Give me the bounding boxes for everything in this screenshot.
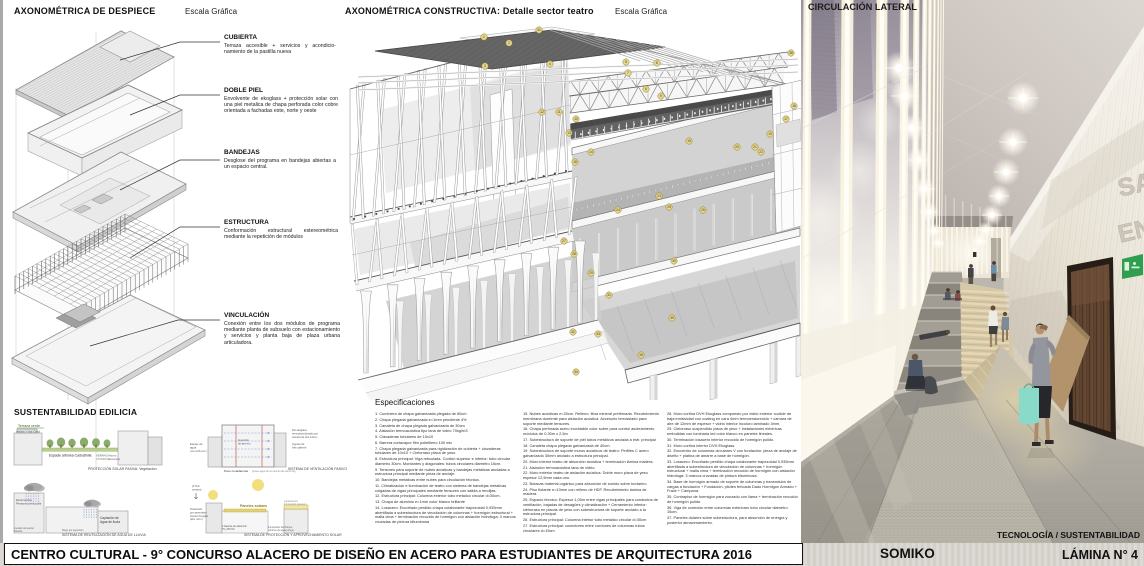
svg-text:por amendamt: por amendamt [190,510,207,514]
svg-text:35: 35 [670,316,674,320]
svg-text:21: 21 [753,145,757,149]
svg-text:15: 15 [687,139,691,143]
svg-text:8: 8 [656,61,658,65]
svg-text:2: 2 [508,41,510,45]
svg-text:camara de aire 12mm: camara de aire 12mm [292,435,317,439]
svg-text:Terraza verde: Terraza verde [18,424,40,428]
svg-text:Paneles solares: Paneles solares [240,504,267,508]
svg-text:29: 29 [589,271,593,275]
svg-text:25: 25 [667,205,671,209]
svg-text:7: 7 [627,71,629,75]
svg-text:34: 34 [574,370,578,374]
svg-text:Dvt ekoglass: Dvt ekoglass [292,428,308,432]
svg-text:Hunter Douglas: Hunter Douglas [190,514,209,518]
svg-text:Espacie arbórea Caducifolia: Espacie arbórea Caducifolia [49,454,92,458]
svg-text:(esparc. + pta. Catio): (esparc. + pta. Catio) [16,430,40,434]
svg-text:24: 24 [616,208,620,212]
svg-text:16: 16 [792,104,796,108]
svg-text:4: 4 [549,62,551,66]
svg-text:19: 19 [768,132,772,136]
svg-text:3: 3 [484,64,486,68]
svg-text:Inyección: Inyección [238,438,250,442]
svg-text:33: 33 [596,332,600,336]
svg-text:23: 23 [657,194,661,198]
svg-text:Iluminación paneles y: Iluminación paneles y [284,503,308,506]
svg-text:termoacondionado por: termoacondionado por [292,431,318,435]
svg-text:27: 27 [562,239,566,243]
svg-text:30: 30 [672,259,676,263]
svg-text:31: 31 [537,28,541,32]
svg-text:exposiciones: exposiciones [284,500,299,503]
svg-text:verano): verano) [192,487,202,491]
svg-text:(Humidificaón): (Humidificaón) [190,449,207,453]
svg-text:36: 36 [639,353,643,357]
svg-text:12: 12 [540,110,544,114]
svg-text:Ganancia: Ganancia [108,457,120,461]
svg-text:14: 14 [589,150,593,154]
svg-text:Protección: Protección [190,507,203,511]
svg-text:9: 9 [660,94,662,98]
svg-text:de aire fr/o: de aire fr/o [238,441,251,445]
svg-text:26: 26 [701,208,705,212]
svg-text:13: 13 [567,131,571,135]
svg-text:5: 5 [625,60,627,64]
svg-text:22: 22 [759,150,763,154]
svg-text:Epiral tecnica: Epiral tecnica [16,498,32,502]
svg-text:10: 10 [574,117,578,121]
svg-text:6: 6 [645,87,647,91]
svg-text:Aire caliente: Aire caliente [292,445,307,449]
svg-text:31: 31 [607,293,611,297]
svg-text:1: 1 [483,35,485,39]
svg-text:Agua de lluvia: Agua de lluvia [100,520,120,524]
svg-text:(abs. térm.): (abs. térm.) [190,517,203,521]
svg-text:agua: agua [190,446,197,450]
svg-text:17: 17 [784,117,788,121]
svg-text:18: 18 [573,160,577,164]
svg-text:11: 11 [557,110,561,114]
svg-text:Poco conadienras: Poco conadienras [224,469,249,473]
svg-text:32: 32 [571,330,575,334]
svg-text:Pensamscroreductafa: Pensamscroreductafa [16,501,42,505]
svg-text:Ingreso de: Ingreso de [292,442,305,446]
svg-text:28: 28 [572,252,576,256]
svg-text:38: 38 [789,51,793,55]
svg-text:20: 20 [735,145,739,149]
